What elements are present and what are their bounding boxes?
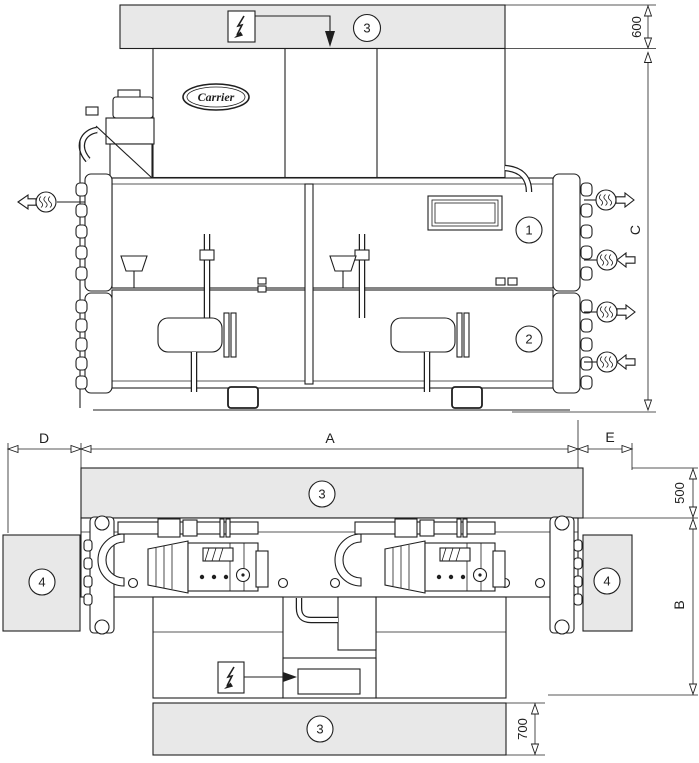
water-connection-in-icon-2 [584,352,635,372]
dimension-E-label: E [605,429,614,445]
unit-base [93,387,570,410]
dimension-A-label: A [325,430,335,446]
dimension-500-label: 500 [672,482,687,504]
callout-top-band-label: 3 [363,21,370,36]
callout-2-label: 2 [525,332,532,347]
dimension-500: 500 [583,468,698,518]
callout-1: 1 [516,217,542,243]
dimension-700-label: 700 [515,718,530,740]
callout-top-band: 3 [354,15,381,42]
side-elevation-view: 3 600 C Carrier [18,5,656,412]
clearance-diagram-page: 3 600 C Carrier [0,0,699,763]
control-panel-display [428,196,502,230]
callout-2: 2 [516,326,542,352]
callout-4-right: 4 [594,568,620,594]
electrical-box-plan [298,669,360,694]
unit-enclosure-panels [153,49,505,178]
dimension-600: 600 [505,5,656,49]
plan-view: D A E 3 500 [3,420,698,755]
carrier-logo-text: Carrier [198,90,235,104]
dimension-C-label: C [627,225,643,235]
callout-mid-band: 3 [309,481,335,507]
dimension-700: 700 [506,703,545,755]
callout-4-left-label: 4 [38,575,45,590]
dimension-B-label: B [671,600,687,609]
carrier-logo: Carrier [183,84,249,110]
dimension-600-label: 600 [629,16,644,38]
callout-mid-band-label: 3 [318,487,325,502]
water-connection-left-icon [18,192,85,212]
electrical-connection-icon [228,11,255,42]
callout-4-left: 4 [29,569,55,595]
clearance-zone-top [120,5,505,49]
technical-drawing: 3 600 C Carrier [0,0,699,763]
callout-bottom-band: 3 [307,716,333,742]
callout-1-label: 1 [525,223,532,238]
callout-bottom-band-label: 3 [316,722,323,737]
electrical-connection-plan-icon [218,662,244,693]
dimension-D-label: D [39,430,49,446]
callout-4-right-label: 4 [603,574,610,589]
